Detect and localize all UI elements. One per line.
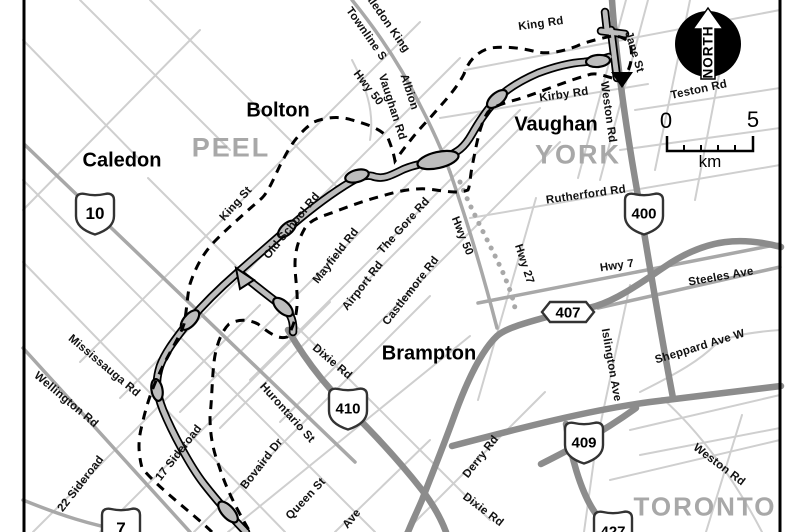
- shield-label-hwy-10: 10: [86, 204, 105, 224]
- shield-label-hwy-7: 7: [116, 519, 125, 532]
- region-label-toronto: TORONTO: [633, 492, 776, 523]
- shield-label-hwy-407: 407: [555, 305, 580, 322]
- scale-end-label: 5: [747, 107, 759, 133]
- city-label-bolton: Bolton: [246, 100, 309, 123]
- region-label-peel: PEEL: [192, 133, 271, 164]
- shield-label-hwy-410: 410: [335, 401, 360, 418]
- shield-label-hwy-427: 427: [600, 524, 625, 532]
- shield-label-hwy-409: 409: [571, 435, 596, 452]
- scale-start-label: 0: [660, 108, 672, 134]
- north-label: NORTH: [701, 26, 716, 79]
- city-label-brampton: Brampton: [382, 343, 476, 366]
- scale-unit-label: km: [699, 152, 722, 172]
- city-label-caledon: Caledon: [83, 150, 162, 173]
- map-canvas: PEEL YORK TORONTO Caledon Bolton Vaughan…: [0, 0, 800, 532]
- shield-label-hwy-400: 400: [631, 206, 656, 223]
- city-label-vaughan: Vaughan: [514, 114, 597, 137]
- region-label-york: YORK: [535, 140, 621, 171]
- hwy-407-road: [408, 241, 781, 532]
